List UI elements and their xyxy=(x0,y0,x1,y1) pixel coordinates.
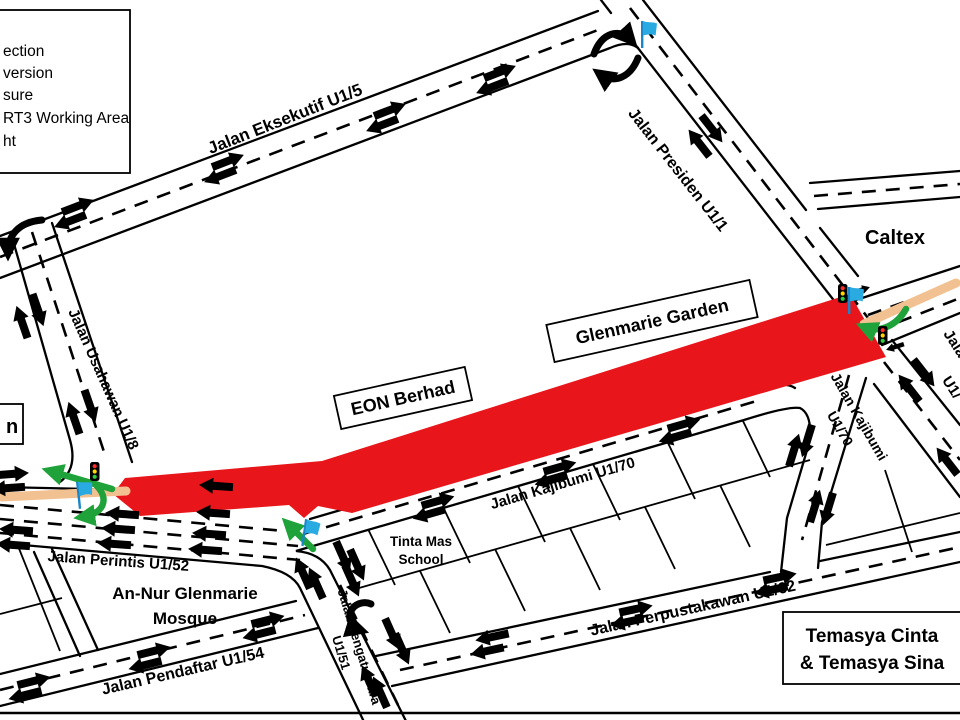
road-label-perintis: Jalan Perintis U1/52 xyxy=(47,548,190,575)
traffic-light-icon xyxy=(90,462,100,481)
direction-arrow xyxy=(9,303,35,340)
road-edge xyxy=(643,0,806,210)
legend-box: ection version sure RT3 Working Area ht xyxy=(0,10,130,173)
direction-arrow xyxy=(100,520,135,538)
partial-left-box: n xyxy=(0,404,23,444)
place-label-tinta-line2: School xyxy=(398,552,443,567)
road-edge xyxy=(818,197,960,209)
direction-arrow xyxy=(191,525,226,543)
place-label-temasya-line2: & Temasya Sina xyxy=(800,653,945,674)
map-canvas: Jalan Eksekutif U1/5 Jalan Presiden U1/1… xyxy=(0,0,960,720)
road-label-edge-partial2: U1/ xyxy=(938,373,960,403)
place-label-temasya-line1: Temasya Cinta xyxy=(806,626,939,647)
legend-item-closure: sure xyxy=(3,87,33,104)
road-edge xyxy=(601,0,611,13)
legend-item-working-area: RT3 Working Area xyxy=(3,110,129,127)
road-edge xyxy=(376,572,770,656)
road-edge xyxy=(0,628,318,706)
place-label-mosque-line2: Mosque xyxy=(153,609,217,628)
working-area-west xyxy=(2,491,126,497)
partial-left-label: n xyxy=(6,416,18,438)
uturn-arrow xyxy=(600,58,638,79)
place-label-caltex: Caltex xyxy=(865,227,925,249)
road-edge xyxy=(820,532,960,561)
direction-arrow xyxy=(96,535,131,553)
legend-item-traffic-light: ht xyxy=(3,133,17,150)
center-dashed xyxy=(814,184,960,196)
road-edge xyxy=(820,228,858,276)
traffic-light-icon xyxy=(878,326,888,345)
temasya-box: Temasya Cinta & Temasya Sina xyxy=(783,612,960,684)
road-label-pendaftar: Jalan Pendaftar U1/54 xyxy=(100,645,266,699)
place-label-mosque-line1: An-Nur Glenmarie xyxy=(112,584,257,603)
road-label-presiden: Jalan Presiden U1/1 xyxy=(624,105,731,235)
place-label-tinta-line1: Tinta Mas xyxy=(390,534,452,549)
traffic-diversion-map: Jalan Eksekutif U1/5 Jalan Presiden U1/1… xyxy=(0,0,960,720)
direction-arrow xyxy=(187,541,222,559)
road-edge xyxy=(856,266,960,300)
direction-arrow xyxy=(0,536,31,554)
direction-arrow xyxy=(930,443,960,480)
road-label-eksekutif: Jalan Eksekutif U1/5 xyxy=(205,80,365,158)
legend-item-direction: ection xyxy=(3,43,44,60)
road-label-edge-partial1: Jala xyxy=(940,327,960,361)
road-edge xyxy=(634,43,846,316)
legend-item-diversion: version xyxy=(3,65,53,82)
direction-arrow xyxy=(77,387,103,424)
eon-berhad-box: EON Berhad xyxy=(334,367,472,429)
center-dashed xyxy=(0,519,298,546)
traffic-light-icon xyxy=(838,284,848,303)
road-edge xyxy=(810,171,960,183)
road-edge xyxy=(12,237,72,482)
